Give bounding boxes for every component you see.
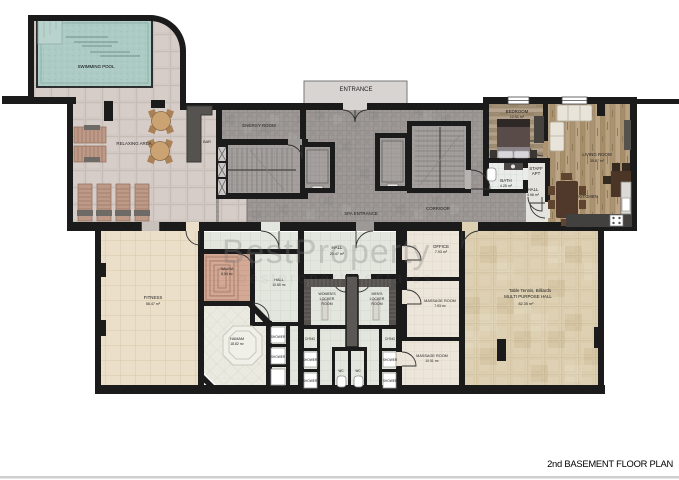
svg-text:WOMEN'S: WOMEN'S <box>318 292 336 296</box>
svg-text:SHOWER: SHOWER <box>383 358 398 362</box>
svg-text:APT: APT <box>532 171 541 176</box>
svg-text:82.35 m²: 82.35 m² <box>519 302 535 306</box>
svg-text:8.54 m²: 8.54 m² <box>221 272 233 276</box>
svg-text:ROOM: ROOM <box>371 302 382 306</box>
svg-text:Table Tennis, Billiards: Table Tennis, Billiards <box>509 288 552 293</box>
svg-text:SHOWER: SHOWER <box>271 355 286 359</box>
svg-text:HALL: HALL <box>528 187 540 192</box>
svg-text:SHOWER: SHOWER <box>303 358 318 362</box>
svg-text:CH'NG: CH'NG <box>305 337 316 341</box>
svg-text:LOCKER: LOCKER <box>370 297 385 301</box>
svg-text:WC: WC <box>355 369 361 373</box>
svg-text:SHOWER: SHOWER <box>303 379 318 383</box>
svg-text:ENERGY ROOM: ENERGY ROOM <box>242 123 276 128</box>
svg-text:KITCHEN: KITCHEN <box>578 194 597 199</box>
svg-text:BEDROOM: BEDROOM <box>506 109 529 114</box>
svg-text:4.25 m²: 4.25 m² <box>500 184 513 188</box>
svg-text:MASSAGE ROOM: MASSAGE ROOM <box>424 299 456 303</box>
svg-text:4.98 m²: 4.98 m² <box>527 193 540 197</box>
svg-text:SHOWER: SHOWER <box>271 335 286 339</box>
svg-text:FITNESS: FITNESS <box>144 295 163 300</box>
svg-text:MEN'S: MEN'S <box>371 292 383 296</box>
svg-text:RELAXING AREA: RELAXING AREA <box>116 141 151 146</box>
svg-text:OFFICE: OFFICE <box>433 244 449 249</box>
svg-text:LIVING ROOM: LIVING ROOM <box>582 152 612 157</box>
svg-text:MASSAGE ROOM: MASSAGE ROOM <box>416 354 448 358</box>
svg-text:SWIMMING POOL: SWIMMING POOL <box>78 64 115 69</box>
svg-text:BATH: BATH <box>500 178 511 183</box>
svg-text:2nd BASEMENT FLOOR PLAN: 2nd BASEMENT FLOOR PLAN <box>547 458 673 469</box>
svg-text:7.93 m²: 7.93 m² <box>434 304 446 308</box>
svg-text:WC: WC <box>338 369 344 373</box>
svg-text:CORRIDOR: CORRIDOR <box>426 206 450 211</box>
svg-text:35.87 m²: 35.87 m² <box>590 159 605 163</box>
svg-text:18.82 m²: 18.82 m² <box>230 342 244 346</box>
svg-text:LOCKER: LOCKER <box>320 297 335 301</box>
svg-text:BestProperty: BestProperty <box>222 233 431 271</box>
svg-text:HAMAM: HAMAM <box>230 337 244 341</box>
svg-text:58.47 m²: 58.47 m² <box>146 302 161 306</box>
svg-text:12.51 m²: 12.51 m² <box>510 115 525 119</box>
svg-text:bestproperty estates: bestproperty estates <box>238 270 434 287</box>
svg-text:MULTI PURPOSE HALL: MULTI PURPOSE HALL <box>504 294 552 299</box>
svg-text:SHOWER: SHOWER <box>383 379 398 383</box>
svg-text:ENTRANCE: ENTRANCE <box>339 87 372 93</box>
svg-text:SPA ENTRANCE: SPA ENTRANCE <box>344 211 378 216</box>
svg-text:10.51 m²: 10.51 m² <box>425 359 439 363</box>
svg-text:ROOM: ROOM <box>321 302 332 306</box>
svg-text:CH'NG: CH'NG <box>385 337 396 341</box>
svg-text:7.93 m²: 7.93 m² <box>435 250 448 254</box>
svg-text:BAR: BAR <box>203 140 211 144</box>
